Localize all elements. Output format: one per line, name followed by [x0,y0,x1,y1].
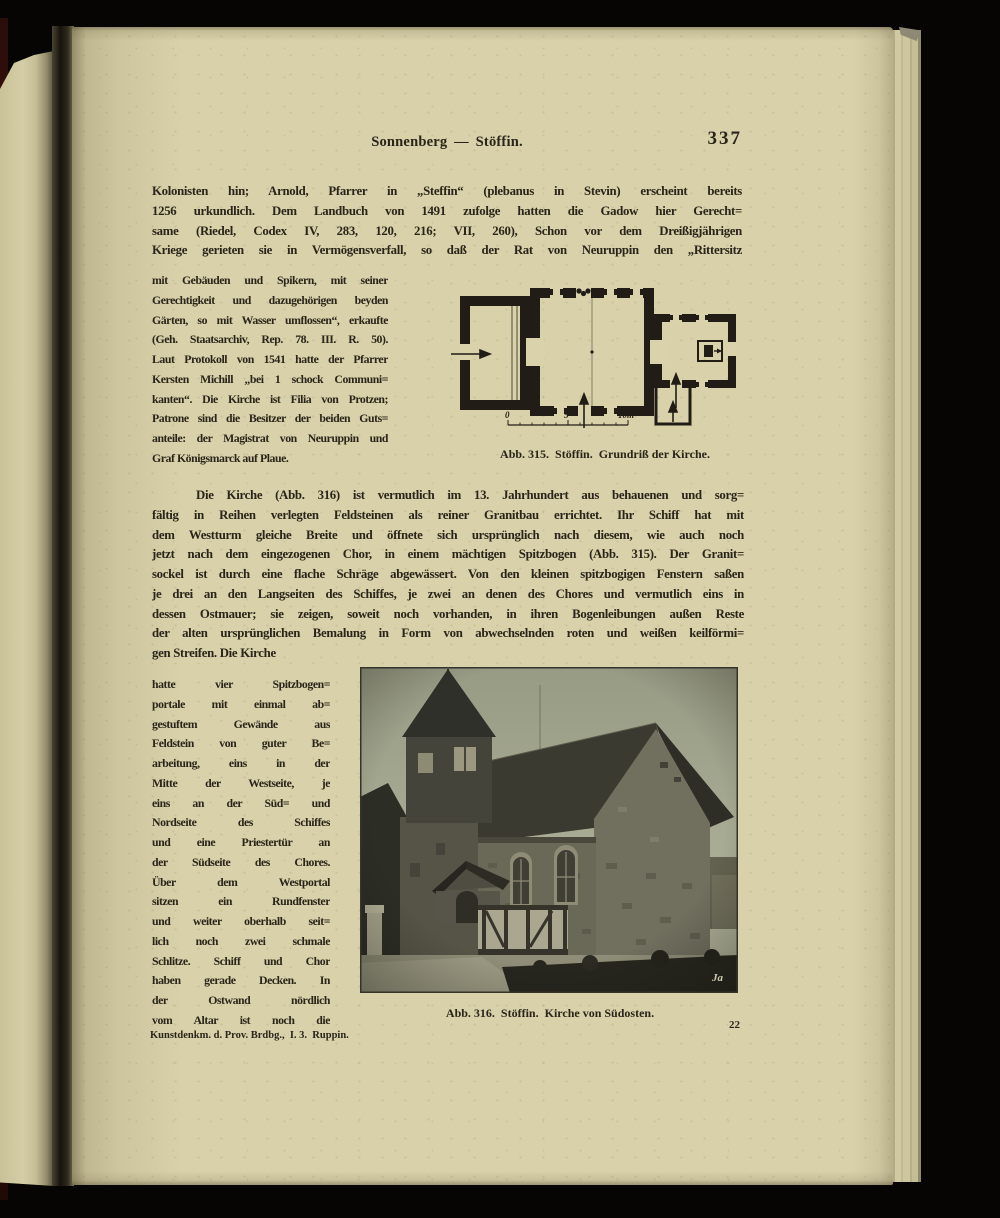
text-line: eins an der Süd= und [152,794,330,814]
floor-plan-figure: 0 5 10m [450,284,772,432]
page-stack-edge [893,30,921,1182]
text-line: Kolonisten hin; Arnold, Pfarrer in „Stef… [152,182,742,202]
text-line: lich noch zwei schmale [152,932,330,952]
figure-316-caption: Abb. 316. Stöffin. Kirche von Südosten. [370,1006,730,1021]
sheet-number: 22 [700,1019,740,1031]
text-line: Graf Königsmarck auf Plaue. [152,449,388,469]
text-line: arbeitung, eins in der [152,754,330,774]
gutter-shadow [52,26,74,1186]
text-line: vom Altar ist noch die [152,1011,330,1031]
text-line: Nordseite des Schiffes [152,813,330,833]
text-line: anteile: der Magistrat von Neuruppin und [152,429,388,449]
plan-altar [698,341,722,361]
facing-page-edge [0,27,54,1186]
plan-window-ticks [550,288,708,414]
text-line: der Südseite des Chores. [152,853,330,873]
text-line: (Geh. Staatsarchiv, Rep. 78. III. R. 50)… [152,330,388,350]
text-line: der alten ursprünglichen Bemalung in For… [152,624,744,644]
imprint-footer: Kunstdenkm. d. Prov. Brdbg., I. 3. Ruppi… [150,1030,349,1041]
text-line: kanten“. Die Kirche ist Filia von Protze… [152,390,388,410]
scale-label-10m: 10m [618,410,634,420]
paragraph-2: Die Kirche (Abb. 316) ist vermutlich im … [152,486,744,664]
text-line: und weiter oberhalb seit= [152,912,330,932]
text-line: Gärten, so mit Wasser umflossen“, erkauf… [152,311,388,331]
scale-label-0: 0 [505,410,510,420]
text-line: dessen Ostmauer; sie zeigen, soweit noch… [152,605,744,625]
column-1: mit Gebäuden und Spikern, mit seiner Ger… [152,271,388,469]
paragraph-1: Kolonisten hin; Arnold, Pfarrer in „Stef… [152,182,742,261]
figure-315-caption: Abb. 315. Stöffin. Grundriß der Kirche. [440,447,770,462]
photo-vignette [360,667,738,993]
text-line: Patrone sind die Besitzer der beiden Gut… [152,409,388,429]
text-line: portale mit einmal ab= [152,695,330,715]
text-line: Mitte der Westseite, je [152,774,330,794]
text-line: sitzen ein Rundfenster [152,892,330,912]
text-line: Laut Protokoll von 1541 hatte der Pfarre… [152,350,388,370]
text-line: Feldstein von guter Be= [152,734,330,754]
text-line: haben gerade Decken. In [152,971,330,991]
book-scan: { "colors": { "paper": "#d8d1a9", "ink":… [0,0,1000,1218]
text-line: Kriege gerieten sie in Vermögensverfall,… [152,241,742,261]
plan-chancel [654,314,736,388]
text-line: und eine Priestertür an [152,833,330,853]
text-line: der Ostwand nördlich [152,991,330,1011]
church-photo-figure: Ja [360,667,738,993]
plan-walls [460,288,736,416]
text-line: gen Streifen. Die Kirche [152,644,744,664]
text-line: Kersten Michill „bei 1 schock Communi= [152,370,388,390]
page-number: 337 [652,128,742,150]
text-line: 1256 urkundlich. Dem Landbuch von 1491 z… [152,202,742,222]
text-line: sockel ist durch eine flache Schräge abg… [152,565,744,585]
scale-label-5: 5 [564,410,569,420]
text-line: Die Kirche (Abb. 316) ist vermutlich im … [152,486,744,506]
column-2: hatte vier Spitzbogen= portale mit einma… [152,675,330,1031]
text-line: Über dem Westportal [152,873,330,893]
photographer-signature: Ja [711,972,724,984]
text-line: same (Riedel, Codex IV, 283, 120, 216; V… [152,222,742,242]
text-line: mit Gebäuden und Spikern, mit seiner [152,271,388,291]
text-line: Gerechtigkeit und dazugehörigen beyden [152,291,388,311]
text-line: jetzt nach dem eingezogenen Chor, in ein… [152,545,744,565]
text-line: Schlitze. Schiff und Chor [152,952,330,972]
text-line: je drei an den Langseiten des Schiffes, … [152,585,744,605]
text-line: gestuftem Gewände aus [152,715,330,735]
text-line: dem Westturm gleiche Breite und öffnete … [152,526,744,546]
text-line: hatte vier Spitzbogen= [152,675,330,695]
text-line: fältig in Reihen verlegten Feldsteinen a… [152,506,744,526]
